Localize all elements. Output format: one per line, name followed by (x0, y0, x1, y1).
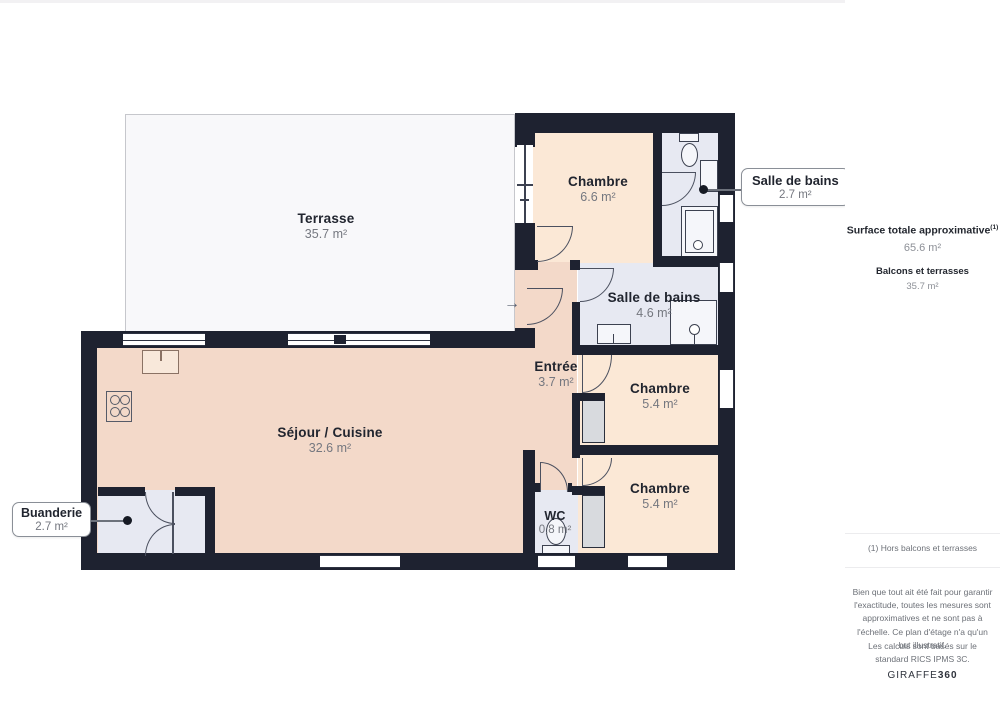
room-area: 3.7 m² (534, 375, 577, 389)
wardrobe-fixture (582, 400, 605, 443)
toilet-fixture (679, 133, 699, 142)
room-name: Chambre (630, 381, 690, 396)
window (538, 555, 575, 568)
balconies-value: 35.7 m² (845, 281, 1000, 292)
wall-segment (523, 483, 540, 492)
window (628, 555, 667, 568)
wall-segment (572, 345, 735, 355)
wall-segment (580, 393, 605, 401)
wall-segment (572, 445, 735, 455)
stove-burner (110, 395, 120, 405)
wall-segment (718, 113, 735, 353)
room-area: 32.6 m² (277, 441, 382, 455)
wall-segment (570, 260, 580, 270)
total-area-label: Surface totale approximative(1) (845, 224, 1000, 237)
wall-segment (515, 113, 735, 133)
wall-segment (515, 223, 535, 270)
kitchen-faucet (160, 350, 162, 361)
footnote-divider-bottom (845, 567, 1000, 568)
room-label-chambre-1: Chambre 6.6 m² (568, 174, 628, 204)
room-name: Chambre (630, 481, 690, 496)
terrace-door-tick (517, 184, 533, 186)
window (320, 555, 400, 568)
wall-segment (572, 486, 605, 495)
sliding-door (288, 333, 430, 346)
shower-stem-2 (694, 335, 695, 345)
stove-burner (110, 407, 120, 417)
door-leaf (172, 492, 174, 554)
wall-segment (653, 131, 662, 258)
room-label-terrasse: Terrasse 35.7 m² (298, 211, 355, 241)
wall-segment (98, 487, 145, 496)
total-area-footnote-marker: (1) (990, 224, 998, 231)
standard-note-text: Les calculs sont basés sur le standard R… (852, 640, 993, 666)
brand-suffix: 360 (938, 670, 958, 681)
callout-anchor-dot (123, 516, 132, 525)
giraffe360-logo: GIRAFFE360 (845, 670, 1000, 681)
shower-drain-2 (689, 324, 700, 335)
callout-leader-line (85, 520, 127, 522)
wall-segment (205, 487, 215, 553)
terrace-door-tick (520, 199, 529, 201)
wall-segment (523, 450, 535, 555)
stove-burner (120, 395, 130, 405)
room-label-chambre-2: Chambre 5.4 m² (630, 381, 690, 411)
wall-segment (515, 113, 535, 147)
callout-leader-line (706, 189, 742, 191)
callout-salle-de-bains-top: Salle de bains 2.7 m² (741, 168, 850, 206)
footnote-text: (1) Hors balcons et terrasses (845, 543, 1000, 553)
room-name: Entrée (534, 359, 577, 374)
footnote-divider-top (845, 533, 1000, 534)
wall-segment (568, 483, 572, 492)
balconies-label: Balcons et terrasses (845, 266, 1000, 277)
floor-plan: → Terrasse 35.7 m² Chambre 6.6 m² Salle … (0, 0, 845, 707)
window (719, 370, 734, 408)
callout-room-area: 2.7 m² (752, 189, 839, 201)
callout-room-name: Buanderie (21, 506, 82, 520)
toilet-bowl-fixture (681, 143, 698, 167)
window (123, 333, 205, 346)
room-label-wc: WC 0.8 m² (539, 509, 572, 536)
sliding-door-handle (334, 335, 346, 344)
room-area: 4.6 m² (608, 306, 701, 320)
callout-buanderie: Buanderie 2.7 m² (12, 502, 91, 537)
room-label-salle-de-bains-mid: Salle de bains 4.6 m² (608, 290, 701, 320)
entrance-arrow-icon: → (504, 296, 520, 312)
window (719, 263, 734, 292)
room-label-entree: Entrée 3.7 m² (534, 359, 577, 389)
brand-name: GIRAFFE (887, 670, 937, 681)
room-name: WC (539, 509, 572, 523)
room-name: Terrasse (298, 211, 355, 226)
window (719, 195, 734, 222)
room-label-sejour-cuisine: Séjour / Cuisine 32.6 m² (277, 425, 382, 455)
room-name: Séjour / Cuisine (277, 425, 382, 440)
callout-room-name: Salle de bains (752, 173, 839, 188)
room-area: 35.7 m² (298, 227, 355, 241)
room-area: 6.6 m² (568, 190, 628, 204)
shower-drain (693, 240, 703, 250)
wardrobe-fixture (582, 495, 605, 548)
total-area-label-text: Surface totale approximative (847, 225, 991, 237)
callout-anchor-dot (699, 185, 708, 194)
room-area: 5.4 m² (630, 397, 690, 411)
total-area-value: 65.6 m² (845, 242, 1000, 254)
stove-burner (120, 407, 130, 417)
room-area: 5.4 m² (630, 497, 690, 511)
sink-divider (613, 334, 614, 344)
room-name: Salle de bains (608, 290, 701, 305)
callout-room-area: 2.7 m² (21, 521, 82, 533)
room-name: Chambre (568, 174, 628, 189)
room-label-chambre-3: Chambre 5.4 m² (630, 481, 690, 511)
room-area: 0.8 m² (539, 524, 572, 536)
